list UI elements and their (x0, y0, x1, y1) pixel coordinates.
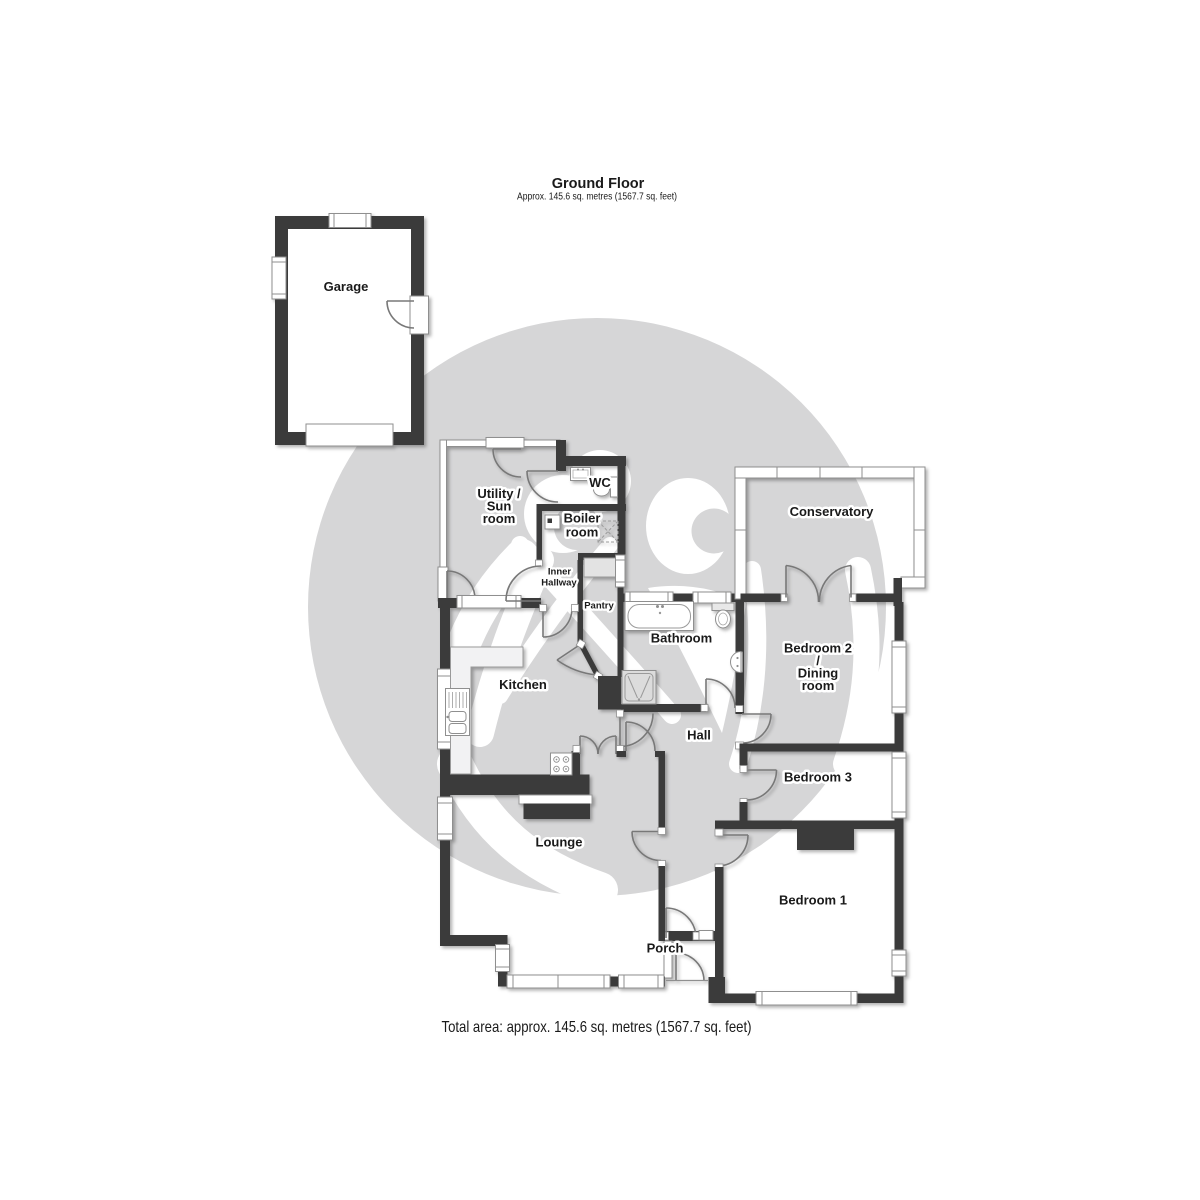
svg-text:Lounge: Lounge (536, 835, 583, 850)
svg-text:Bedroom 1: Bedroom 1 (779, 893, 847, 908)
svg-text:Hallway: Hallway (541, 578, 577, 589)
svg-text:Pantry: Pantry (584, 601, 614, 612)
svg-text:room: room (802, 678, 835, 693)
svg-text:Garage: Garage (324, 279, 369, 294)
svg-text:Conservatory: Conservatory (790, 504, 875, 519)
svg-text:Kitchen: Kitchen (499, 677, 547, 692)
svg-text:room: room (566, 525, 599, 540)
svg-text:Hall: Hall (687, 728, 711, 743)
svg-text:Porch: Porch (647, 941, 684, 956)
svg-text:Inner: Inner (548, 567, 572, 578)
svg-text:Total area: approx. 145.6 sq.: Total area: approx. 145.6 sq. metres (15… (442, 1019, 752, 1036)
svg-text:WC: WC (589, 475, 611, 490)
svg-text:Ground Floor: Ground Floor (552, 176, 645, 192)
svg-text:Bathroom: Bathroom (651, 631, 712, 646)
svg-text:Approx. 145.6 sq. metres (1567: Approx. 145.6 sq. metres (1567.7 sq. fee… (517, 192, 677, 203)
svg-text:room: room (483, 511, 516, 526)
svg-text:Boiler: Boiler (564, 511, 601, 526)
svg-text:Bedroom 3: Bedroom 3 (784, 770, 852, 785)
